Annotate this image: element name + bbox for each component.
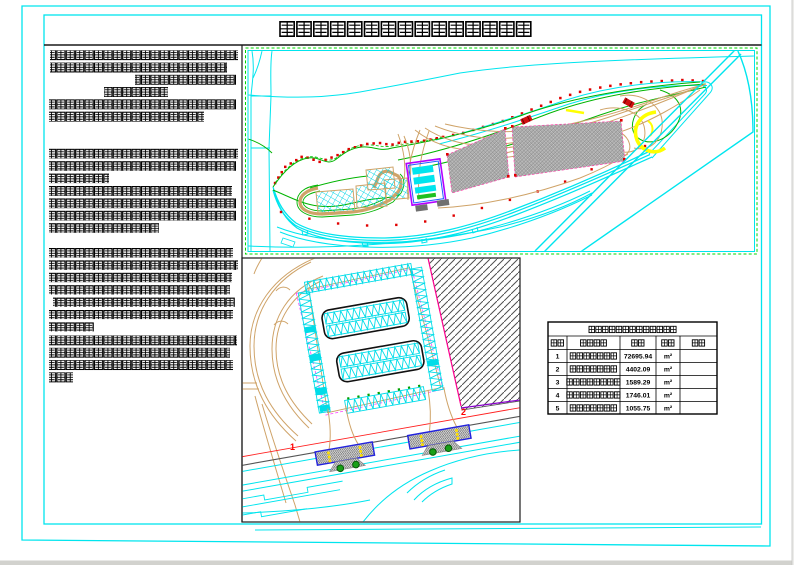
svg-text:1: 1	[290, 442, 295, 452]
svg-text:m²: m²	[664, 392, 673, 399]
svg-text:1055.75: 1055.75	[626, 405, 651, 412]
svg-text:1746.01: 1746.01	[626, 392, 651, 399]
svg-text:2: 2	[556, 366, 560, 373]
svg-text:m²: m²	[664, 353, 673, 360]
svg-text:m²: m²	[664, 405, 673, 412]
svg-text:m²: m²	[664, 366, 673, 373]
svg-text:1589.29: 1589.29	[626, 379, 651, 386]
svg-text:m²: m²	[664, 379, 673, 386]
svg-text:1: 1	[556, 353, 560, 360]
svg-text:72695.94: 72695.94	[624, 353, 653, 360]
svg-text:4: 4	[556, 392, 560, 399]
svg-text:3: 3	[556, 379, 560, 386]
svg-text:4402.09: 4402.09	[626, 366, 651, 373]
svg-text:5: 5	[556, 405, 560, 412]
svg-text:2: 2	[461, 407, 466, 417]
